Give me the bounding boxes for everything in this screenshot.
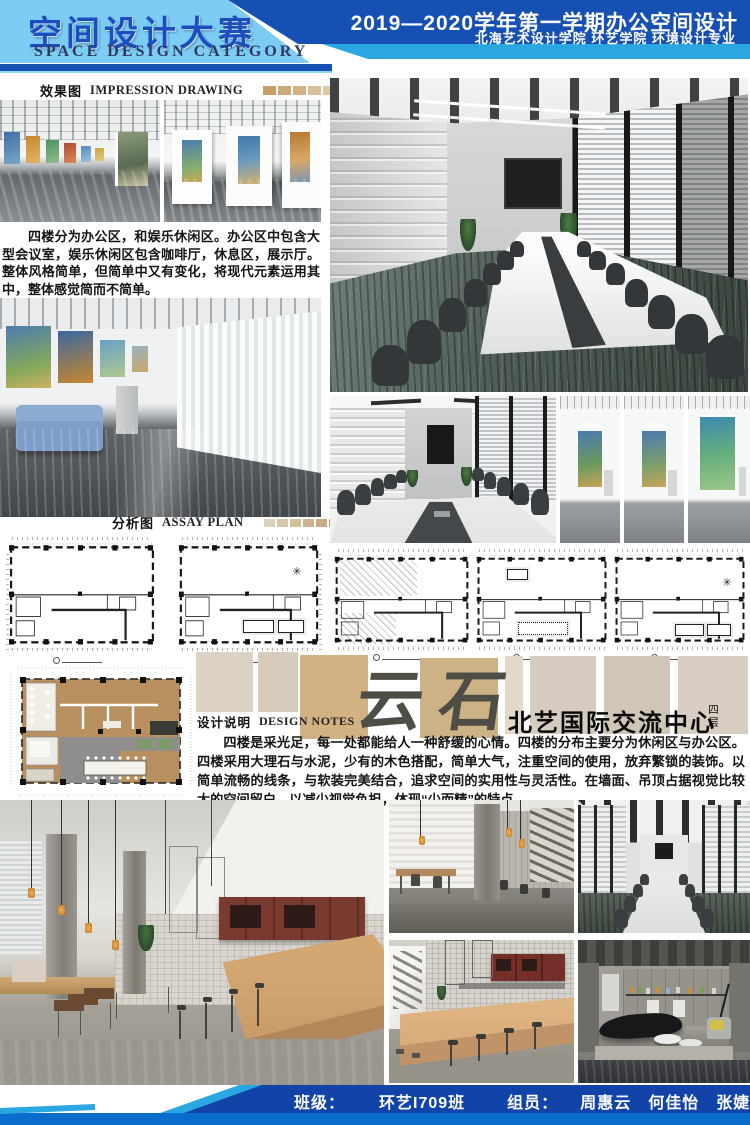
- render-lounge: [578, 940, 750, 1083]
- project-floor: 四层: [706, 704, 721, 729]
- render-cafe-main: [0, 800, 384, 1085]
- floor-plan-2: ✳: [176, 537, 322, 663]
- section-impression-cn: 效果图: [40, 81, 82, 100]
- render-gallery-a: [0, 100, 160, 222]
- footer-credits: 班级： 环艺I709班 组员： 周惠云 何佳怡 张婕: [294, 1089, 750, 1113]
- footer-bottom-stripe: [0, 1113, 750, 1125]
- render-corridor: [0, 298, 321, 517]
- section-assay: 分析图 ASSAY PLAN: [112, 513, 366, 532]
- class-label: 班级：: [294, 1089, 345, 1113]
- poster-subtitle: SPACE DESIGN CATEGORY: [34, 43, 308, 61]
- logo-watermark: 云石: [351, 648, 528, 744]
- floor-plan-1: [6, 537, 158, 663]
- render-conference-side: [330, 396, 556, 543]
- render-bar-counter: [389, 940, 574, 1083]
- floor-plan-3: [332, 549, 472, 660]
- section-impression-en: IMPRESSION DRAWING: [90, 83, 243, 98]
- render-exhibit-slice-3: [688, 396, 750, 543]
- section-assay-cn: 分析图: [112, 513, 154, 532]
- members-names: 周惠云 何佳怡 张婕: [580, 1089, 750, 1113]
- school-name: 北海艺术设计学院 环艺学院 环境设计专业: [475, 28, 736, 47]
- class-value: 环艺I709班: [379, 1089, 465, 1113]
- header-underline: [0, 64, 332, 71]
- members-label: 组员：: [507, 1089, 558, 1113]
- floor-plan-color: [8, 665, 194, 799]
- notes-paragraph: 四楼是采光足，每一处都能给人一种舒缓的心情。四楼的分布主要分为休闲区与办公区。四…: [197, 733, 745, 809]
- render-conference-main: [330, 78, 748, 392]
- render-meeting-corridor: [578, 800, 750, 933]
- floor-plan-4: [474, 549, 610, 660]
- intro-paragraph: 四楼分为办公区，和娱乐休闲区。办公区中包含大型会议室，娱乐休闲区包含咖啡厅，休息…: [2, 228, 320, 298]
- poster: 空间设计大赛 SPACE DESIGN CATEGORY 2019—2020学年…: [0, 0, 750, 1125]
- header-underline-light: [0, 71, 332, 73]
- render-cafe-column: [389, 800, 574, 933]
- render-exhibit-slice-2: [624, 396, 684, 543]
- section-assay-en: ASSAY PLAN: [162, 515, 244, 530]
- section-notes-en: DESIGN NOTES: [259, 714, 355, 729]
- section-notes: 设计说明 DESIGN NOTES: [197, 712, 355, 731]
- floor-plan-5: ✳: [612, 549, 748, 660]
- section-notes-cn: 设计说明: [197, 712, 251, 731]
- render-exhibit-slice-1: [560, 396, 620, 543]
- render-gallery-b: [164, 100, 321, 222]
